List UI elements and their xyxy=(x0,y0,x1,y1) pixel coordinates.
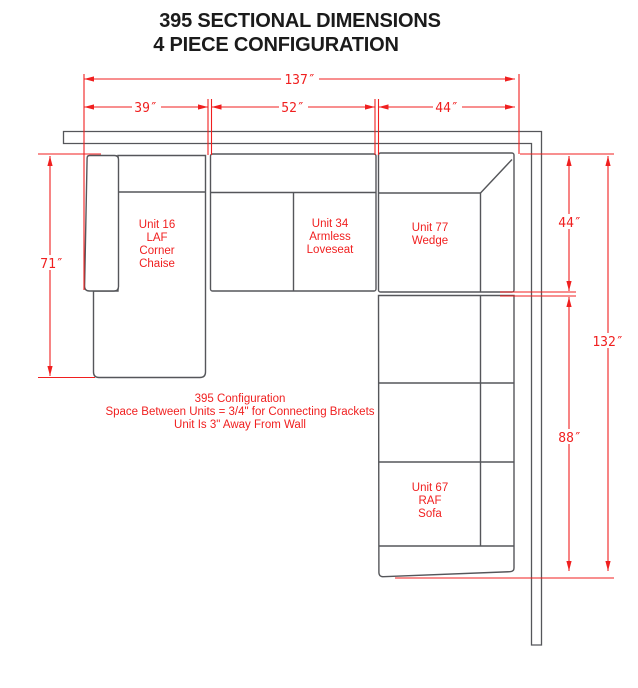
sectional-dimension-sheet: 395 SECTIONAL DIMENSIONS 4 PIECE CONFIGU… xyxy=(0,0,638,688)
note-line-1: 395 Configuration xyxy=(195,393,286,405)
unit16-label-line3: Corner xyxy=(139,245,174,257)
note-line-3: Unit Is 3" Away From Wall xyxy=(174,419,306,431)
title-line-2: 4 PIECE CONFIGURATION xyxy=(153,34,398,56)
unit67-label-line2: RAF xyxy=(419,495,442,507)
dim-label-total-depth: 132″ xyxy=(592,335,623,350)
dim-label-wedge-width: 44″ xyxy=(435,101,458,116)
dim-label-wedge-depth: 44″ xyxy=(558,216,581,231)
unit77-label-line2: Wedge xyxy=(412,235,448,247)
unit67-label-line3: Sofa xyxy=(418,508,442,520)
sectional-units xyxy=(85,153,514,577)
unit34-label-line2: Armless xyxy=(309,231,351,243)
unit34-label-line1: Unit 34 xyxy=(312,218,349,230)
note-line-2: Space Between Units = 3/4" for Connectin… xyxy=(105,406,374,418)
dim-label-sofa-length: 88″ xyxy=(558,431,581,446)
unit16-label-line4: Chaise xyxy=(139,258,175,270)
unit16-label-line2: LAF xyxy=(146,232,167,244)
dim-label-loveseat-width: 52″ xyxy=(281,101,304,116)
chaise-arm xyxy=(85,156,119,292)
configuration-note: 395 Configuration Space Between Units = … xyxy=(105,393,374,431)
dim-label-chaise-width: 39″ xyxy=(134,101,157,116)
unit16-label-line1: Unit 16 xyxy=(139,219,175,231)
dim-label-chaise-depth: 71″ xyxy=(40,257,63,272)
sectional-diagram: 395 SECTIONAL DIMENSIONS 4 PIECE CONFIGU… xyxy=(0,0,638,688)
unit77-label-line1: Unit 77 xyxy=(412,222,448,234)
title-line-1: 395 SECTIONAL DIMENSIONS xyxy=(159,10,441,32)
dim-label-total-width: 137″ xyxy=(284,73,315,88)
sofa-outline xyxy=(379,296,515,577)
unit67-label-line1: Unit 67 xyxy=(412,482,448,494)
unit34-label-line3: Loveseat xyxy=(307,244,354,256)
